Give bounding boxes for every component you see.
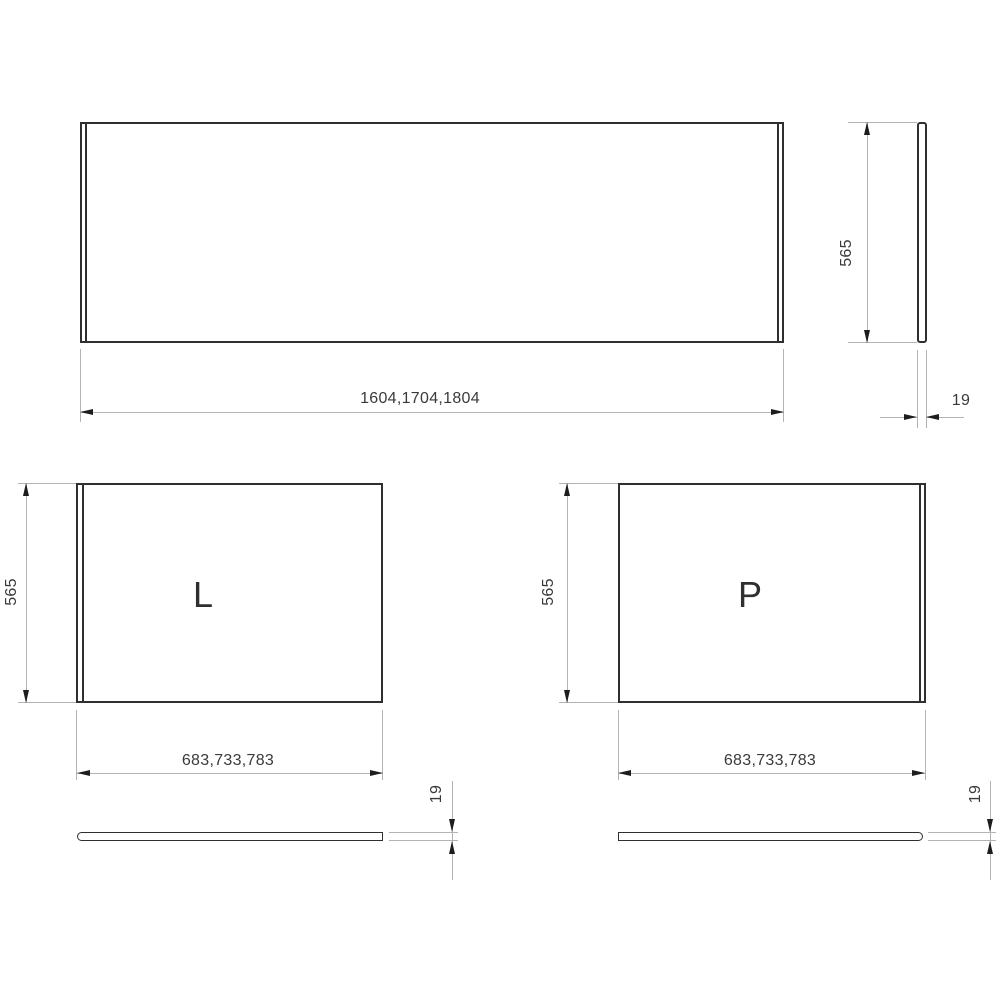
panel-l-thickness-ext-line-bottom	[389, 840, 458, 841]
panel-p-width-arrow-right	[912, 770, 925, 776]
panel-l-height-dim-text: 565	[3, 578, 21, 606]
panel-p-width-ext-line-right	[925, 710, 926, 780]
panel-p-width-dim-line	[618, 773, 925, 774]
panel-l-thickness-ext-line-top	[389, 832, 458, 833]
panel-l-thickness-dim-text: 19	[428, 785, 446, 803]
panel-l-height-arrow-top	[23, 483, 29, 496]
panel-l-width-arrow-right	[370, 770, 383, 776]
side-height-dim-line	[867, 122, 868, 343]
panel-l-height-dim-line	[26, 483, 27, 703]
panel-l-height-arrow-bottom	[23, 690, 29, 703]
front-panel-right-edge-line	[777, 124, 779, 341]
panel-p-top-outline	[618, 832, 923, 841]
panel-p-thickness-ext-line-bottom	[928, 840, 996, 841]
side-height-arrow-bottom	[864, 330, 870, 343]
side-profile-outline	[917, 122, 927, 343]
panel-p-width-arrow-left	[618, 770, 631, 776]
front-width-arrow-left	[80, 409, 93, 415]
panel-p-outline	[618, 483, 926, 703]
panel-p-thickness-dim-text: 19	[967, 785, 985, 803]
panel-l-width-dim-text: 683,733,783	[182, 752, 274, 770]
panel-p-width-dim-text: 683,733,783	[724, 752, 816, 770]
front-width-arrow-right	[771, 409, 784, 415]
panel-l-thickness-arrow-bottom	[449, 841, 455, 854]
panel-p-height-dim-text: 565	[540, 578, 558, 606]
panel-l-width-arrow-left	[77, 770, 90, 776]
technical-drawing-canvas: 1604,1704,1804 565 19 L 565	[0, 0, 1000, 1000]
side-thickness-ext-line-left	[917, 350, 918, 428]
panel-p-height-arrow-top	[564, 483, 570, 496]
panel-p-height-arrow-bottom	[564, 690, 570, 703]
panel-p-right-edge-line	[919, 485, 921, 701]
front-width-dim-line	[80, 412, 784, 413]
side-thickness-arrow-right	[926, 414, 939, 420]
panel-p-thickness-arrow-top	[987, 819, 993, 832]
panel-p-label: P	[738, 574, 762, 616]
panel-l-thickness-arrow-top	[449, 819, 455, 832]
side-thickness-dim-text: 19	[952, 392, 970, 410]
side-height-arrow-top	[864, 122, 870, 135]
panel-p-thickness-ext-line-top	[928, 832, 996, 833]
panel-l-width-dim-line	[77, 773, 383, 774]
panel-l-outline	[76, 483, 383, 703]
panel-p-thickness-arrow-bottom	[987, 841, 993, 854]
panel-l-top-outline	[77, 832, 383, 841]
front-panel-left-edge-line	[85, 124, 87, 341]
panel-l-left-edge-line	[82, 485, 84, 701]
side-height-ext-line-top	[848, 122, 917, 123]
side-height-ext-line-bottom	[848, 342, 917, 343]
side-height-dim-text: 565	[838, 239, 856, 267]
panel-l-label: L	[193, 574, 213, 616]
panel-p-height-dim-line	[567, 483, 568, 703]
side-thickness-arrow-left	[904, 414, 917, 420]
front-width-dim-text: 1604,1704,1804	[360, 390, 480, 408]
front-panel-outline	[80, 122, 784, 343]
